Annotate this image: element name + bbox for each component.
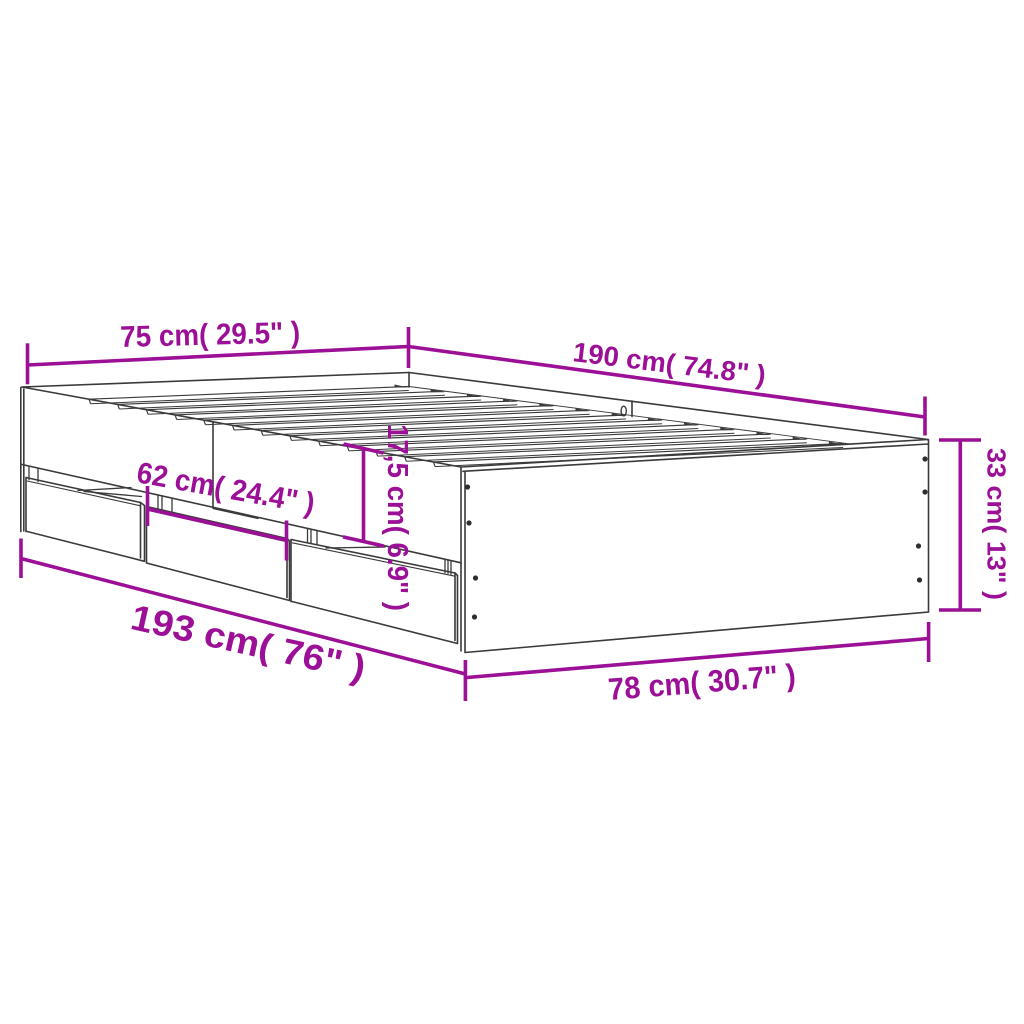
svg-text:33 cm( 13" ): 33 cm( 13" ) bbox=[982, 448, 1012, 600]
svg-text:75 cm( 29.5" ): 75 cm( 29.5" ) bbox=[120, 316, 301, 354]
svg-text:17,5 cm( 6.9" ): 17,5 cm( 6.9" ) bbox=[381, 424, 413, 611]
